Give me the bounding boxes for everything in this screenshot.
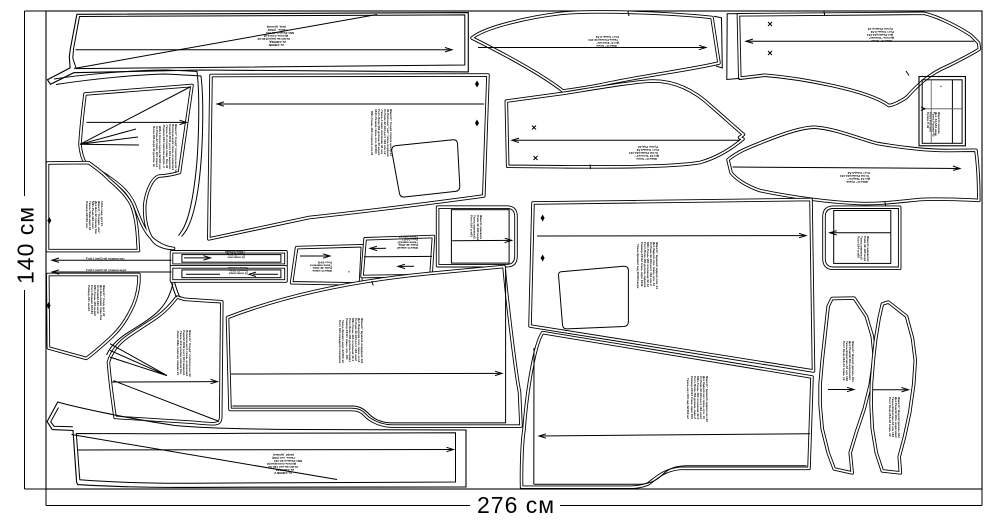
svg-text:Рулон Размер-42: Рулон Размер-42	[868, 27, 893, 31]
svg-text:276 см: 276 см	[477, 492, 555, 518]
svg-text:(мм)2_(длина): (мм)2_(длина)	[273, 453, 294, 457]
svg-text:Рулон Р-42: Рулон Р-42	[926, 112, 930, 129]
svg-text:Рост Ткань-9-52: Рост Ткань-9-52	[595, 35, 619, 39]
svg-text:Ткань-планка: Ткань-планка	[228, 266, 248, 270]
svg-text:М91-Ткань-164 полочка низ 21: М91-Ткань-164 полочка низ 21	[370, 111, 374, 156]
svg-text:Размер-42/164 низ: Размер-42/164 низ	[85, 201, 89, 228]
svg-text:Рост-1641: Рост-1641	[317, 261, 332, 265]
svg-text:Ткань-низ 164 зад 42/164 в2: Ткань-низ 164 зад 42/164 в2	[686, 378, 690, 419]
svg-text:Рост-164 сгиб1: Рост-164 сгиб1	[470, 215, 474, 237]
svg-text:Рост Ткань9-52: Рост Ткань9-52	[847, 171, 870, 175]
svg-text:Размер-421 низ21: Размер-421 низ21	[87, 285, 91, 311]
svg-text:Полн.164 верх 42 деталь 12: Полн.164 верх 42 деталь 12	[152, 126, 156, 167]
svg-text:Ткань-манж2: Ткань-манж2	[399, 235, 418, 239]
svg-text:140 см: 140 см	[13, 206, 39, 284]
svg-text:Рост Разм-164+41 ткань 12: Рост Разм-164+41 ткань 12	[842, 341, 846, 381]
svg-text:1: 1	[939, 85, 943, 87]
svg-text:-Разм-164в полочка нижняя 21: -Разм-164в полочка нижняя 21	[176, 330, 180, 376]
svg-text:(мм)_(длина): (мм)_(длина)	[267, 25, 286, 29]
svg-text:Рост 164 передняя половина: Рост 164 передняя половина	[338, 320, 342, 363]
svg-text:Рулон Ряд-42: Рулон Ряд-42	[638, 145, 658, 149]
svg-text:Fold Line/Сгиб планки низ: Fold Line/Сгиб планки низ	[86, 256, 125, 260]
svg-text:Рост Разм-164+42 ткань 22: Рост Разм-164+42 ткань 22	[888, 397, 892, 437]
svg-text:Ткань-брюки2 зад 42/164 верх: Ткань-брюки2 зад 42/164 верх	[636, 244, 640, 289]
svg-text:Fold Line/Сгиб планки верх: Fold Line/Сгиб планки верх	[86, 268, 127, 272]
svg-text:Ткань-планка: Ткань-планка	[225, 250, 245, 254]
svg-text:Рост-164 сгиб2: Рост-164 сгиб2	[857, 236, 861, 258]
